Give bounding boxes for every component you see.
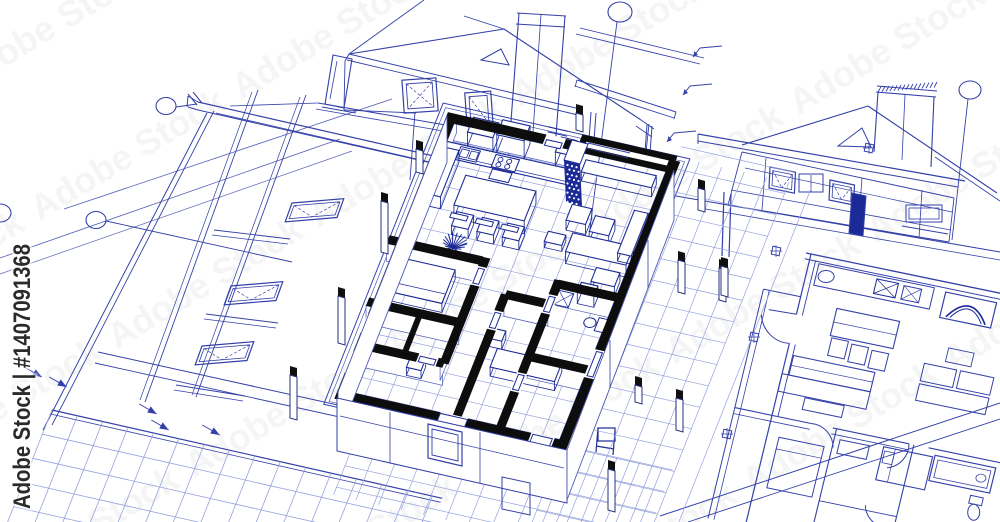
svg-text:Adobe Stock | #1407091368: Adobe Stock | #1407091368 (9, 244, 36, 509)
